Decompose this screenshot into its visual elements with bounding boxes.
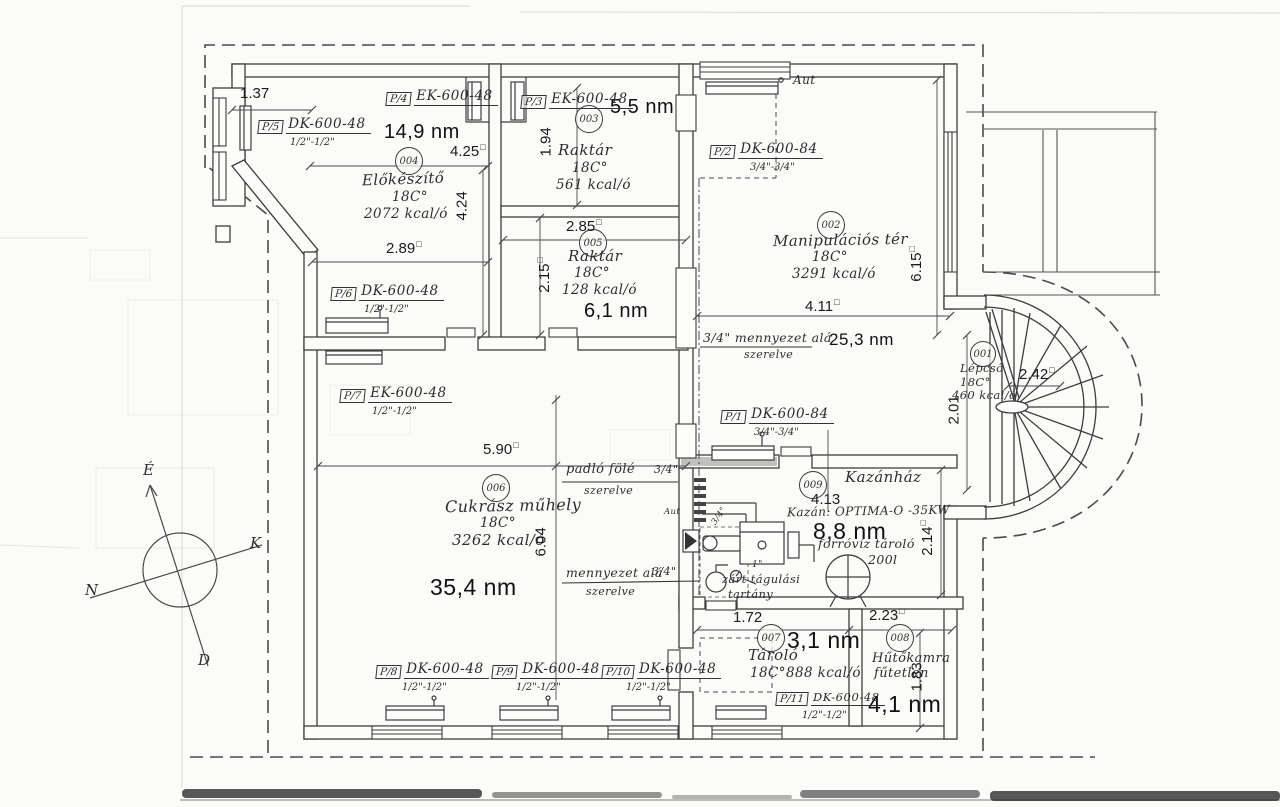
radiator-tag-p2: P/2 <box>709 145 736 159</box>
note-ceiling-boiler-line1: mennyezet alá <box>566 566 663 579</box>
dim-value: 6.04 <box>533 527 550 556</box>
radiator-tag-p11: P/11 <box>775 692 808 706</box>
radiator-model-p9: DK-600-48 <box>520 661 604 679</box>
room-name-lepcso: Lépcső <box>960 362 1003 374</box>
compass-rose <box>90 485 262 666</box>
radiator-conn-p1: 3/4"-3/4" <box>754 428 799 439</box>
dim-2-85: 2.85□ <box>566 219 602 235</box>
dim-4-24: 4.24 <box>455 191 471 220</box>
radiator-model-p3: EK-600-48 <box>549 91 632 109</box>
radiator-tag-p10: P/10 <box>601 665 634 679</box>
dim-value: 1.94 <box>538 127 555 156</box>
room-name-raktar-003: Raktár <box>558 143 612 159</box>
dim-value: 1.37 <box>240 85 269 102</box>
radiator-model-p8: DK-600-48 <box>404 661 488 679</box>
radiator-model-p2: DK-600-84 <box>738 141 822 159</box>
room-temp-cukrasz: 18C° <box>480 516 516 530</box>
radiator-conn-p7: 1/2"-1/2" <box>372 407 417 418</box>
note-floor-size: 3/4" <box>654 464 678 476</box>
radiator-label-p3: P/3 EK-600-48 <box>521 91 633 109</box>
room-area-cukrasz: 35,4 nm <box>430 575 517 599</box>
dim-value: 2.14 <box>919 526 936 555</box>
radiator-tag-p4: P/4 <box>385 92 412 106</box>
dim-5-90: 5.90□ <box>483 442 519 458</box>
room-area-elokeszito: 14,9 nm <box>384 122 460 143</box>
room-area-tarolo: 3,1 nm <box>787 628 860 652</box>
staircase <box>984 295 1109 519</box>
dim-2-42: 2.42□ <box>1019 367 1055 383</box>
radiator-label-p10: P/10 DK-600-48 <box>602 661 721 679</box>
room-heat-elokeszito: 2072 kcal/ó <box>364 207 448 221</box>
dim-value: 5.90 <box>483 441 512 458</box>
room-name-kazanhaz: Kazánház <box>845 470 921 486</box>
dim-2-15: 2.15□ <box>537 257 553 293</box>
dim-value: 4.11 <box>805 298 833 315</box>
compass-west-label: N <box>85 583 99 599</box>
note-ceiling-boiler-size: 3/4" <box>652 566 676 578</box>
radiator-conn-p5: 1/2"-1/2" <box>290 138 335 149</box>
room-heat-raktar-003: 561 kcal/ó <box>556 178 631 192</box>
radiator-model-p10: DK-600-48 <box>637 661 721 679</box>
dim-2-89: 2.89□ <box>386 241 422 257</box>
hot-water-tank-label: forróvíz tároló <box>818 537 915 550</box>
radiator-model-p1: DK-600-84 <box>749 406 833 424</box>
dim-value: 2.42 <box>1019 366 1048 383</box>
dim-4-11: 4.11□ <box>805 299 840 315</box>
dim-2-01: 2.01 <box>947 395 963 424</box>
dim-value: 2.01 <box>946 395 963 424</box>
radiator-label-p6: P/6 DK-600-48 <box>331 283 444 301</box>
room-area-manipulacios: 25,3 nm <box>829 331 894 349</box>
square-meter-mark: □ <box>1049 365 1054 375</box>
dim-1-72: 1.72 <box>733 610 762 626</box>
square-meter-mark: □ <box>596 217 601 227</box>
radiator-conn-p6: 1/2"-1/2" <box>364 305 409 316</box>
room-number-003: 003 <box>575 105 603 133</box>
radiator-label-p5: P/5 DK-600-48 <box>258 116 371 134</box>
dim-value: 4.24 <box>454 191 471 220</box>
square-meter-mark: □ <box>907 246 917 251</box>
radiator-label-p7: P/7 EK-600-48 <box>340 385 452 403</box>
note-floor-line2: szerelve <box>584 485 633 497</box>
compass-south-label: D <box>198 653 210 669</box>
neighbor-structure <box>966 112 1160 295</box>
dim-value: 2.23 <box>869 607 898 624</box>
room-number-008: 008 <box>886 624 914 652</box>
room-name-manipulacios: Manipulációs tér <box>773 232 908 250</box>
room-name-cukrasz: Cukrász műhely <box>445 497 581 516</box>
room-temp-lepcso: 18C° <box>960 376 991 388</box>
square-meter-mark: □ <box>899 606 904 616</box>
radiator-model-p4: EK-600-48 <box>414 88 497 106</box>
dim-value: 2.15 <box>536 263 553 292</box>
radiator-label-p8: P/8 DK-600-48 <box>376 661 489 679</box>
dim-4-25: 4.25□ <box>450 144 486 160</box>
note-ceiling-top-line1: 3/4" mennyezet alá <box>703 331 832 344</box>
dim-6-15: 6.15□ <box>909 246 925 282</box>
radiator-conn-p2: 3/4"-3/4" <box>750 163 795 174</box>
square-meter-mark: □ <box>480 142 485 152</box>
radiator-tag-p3: P/3 <box>520 95 547 109</box>
radiator-tag-p5: P/5 <box>257 120 284 134</box>
radiator-tag-p7: P/7 <box>339 389 366 403</box>
square-meter-mark: □ <box>535 257 545 262</box>
scan-artifacts-bottom <box>180 789 1280 801</box>
note-ceiling-boiler-line2: szerelve <box>586 586 635 598</box>
tank-volume-label: 200l <box>868 553 897 566</box>
square-meter-mark: □ <box>416 239 421 249</box>
room-temp-raktar-003: 18C° <box>572 161 608 175</box>
expansion-tank-label-line2: tartány <box>728 588 773 600</box>
compass-north-label: É <box>143 463 154 479</box>
dim-value: 4.25 <box>450 143 479 160</box>
room-temp-elokeszito: 18C° <box>392 190 428 204</box>
note-ceiling-top-line2: szerelve <box>744 349 793 361</box>
dim-value: 6.15 <box>908 252 925 281</box>
note-floor-line1: padló fölé <box>566 463 635 477</box>
pipe-size-1-label: 1" <box>752 561 763 570</box>
room-temp-raktar-005: 18C° <box>574 266 610 280</box>
radiator-conn-p8: 1/2"-1/2" <box>402 683 447 694</box>
note-aut-top: Aut <box>793 74 815 87</box>
radiator-label-p2: P/2 DK-600-84 <box>710 141 823 159</box>
boiler-spec-label: Kazán: OPTIMA-O -35KW <box>787 504 950 519</box>
dim-value: 1.83 <box>909 662 926 691</box>
room-heat-manipulacios: 3291 kcal/ó <box>792 267 876 281</box>
radiator-label-p11: P/11 DK-600-48 <box>776 690 885 706</box>
radiator-tag-p9: P/9 <box>491 665 518 679</box>
square-meter-mark: □ <box>513 440 518 450</box>
compass-east-label: K <box>250 536 262 552</box>
room-heat-cukrasz: 3262 kcal/ó <box>452 533 545 549</box>
radiator-label-p1: P/1 DK-600-84 <box>721 406 834 424</box>
room-heat-tarolo: 888 kcal/ó <box>786 666 861 680</box>
radiator-model-p6: DK-600-48 <box>359 283 443 301</box>
room-heat-raktar-005: 128 kcal/ó <box>562 283 637 297</box>
radiator-conn-p10: 1/2"-1/2" <box>626 683 671 694</box>
radiator-model-p5: DK-600-48 <box>286 116 370 134</box>
square-meter-mark: □ <box>834 297 839 307</box>
radiator-model-p11: DK-600-48 <box>811 690 885 706</box>
room-name-elokeszito: Előkészítő <box>362 171 445 190</box>
dim-1-94: 1.94 <box>539 127 555 156</box>
radiator-conn-p11: 1/2"-1/2" <box>802 711 847 722</box>
dim-2-14: 2.14□ <box>920 520 936 556</box>
dim-6-04: 6.04 <box>534 527 550 556</box>
radiator-tag-p1: P/1 <box>720 410 747 424</box>
radiator-tag-p6: P/6 <box>330 287 357 301</box>
radiator-symbols <box>240 78 783 720</box>
square-meter-mark: □ <box>918 520 928 525</box>
dimension-lines <box>228 76 1064 732</box>
room-area-raktar-005: 6,1 nm <box>584 301 648 322</box>
room-temp-manipulacios: 18C° <box>812 250 848 264</box>
dim-value: 1.72 <box>733 609 762 626</box>
dim-value: 2.89 <box>386 240 415 257</box>
note-aut-boiler: Aut <box>664 508 680 517</box>
radiator-conn-p9: 1/2"-1/2" <box>516 683 561 694</box>
dim-value: 2.85 <box>566 218 595 235</box>
dim-2-23: 2.23□ <box>869 608 905 624</box>
floor-plan-page: 004 003 005 002 001 006 009 007 008 Elők… <box>0 0 1280 807</box>
radiator-model-p7: EK-600-48 <box>368 385 451 403</box>
room-name-raktar-005: Raktár <box>568 249 622 265</box>
room-temp-tarolo: 18C° <box>750 666 786 680</box>
radiator-tag-p8: P/8 <box>375 665 402 679</box>
dim-1-83: 1.83 <box>910 662 926 691</box>
dim-1-37: 1.37 <box>240 86 269 102</box>
radiator-label-p9: P/9 DK-600-48 <box>492 661 605 679</box>
radiator-label-p4: P/4 EK-600-48 <box>386 88 498 106</box>
expansion-tank-label-line1: zárt tágulási <box>722 573 800 585</box>
